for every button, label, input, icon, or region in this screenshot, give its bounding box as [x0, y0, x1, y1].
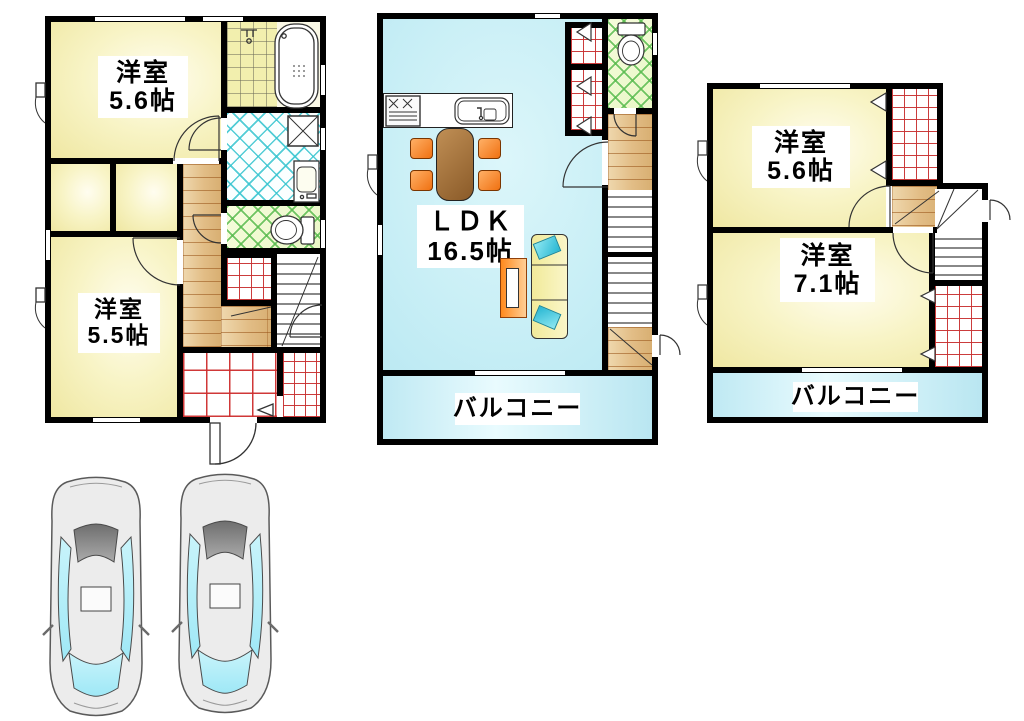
chair [478, 138, 501, 159]
wall [45, 231, 183, 237]
door-opening [173, 158, 219, 164]
bath-tile-floor [227, 22, 277, 107]
room-name: 洋室 [800, 242, 854, 270]
wall [929, 233, 935, 367]
casement-window [367, 155, 377, 195]
window [377, 225, 383, 255]
wall [937, 183, 988, 189]
chair [410, 138, 433, 159]
floor2-plan: ＬＤＫ 16.5帖 バルコニー [377, 13, 658, 445]
floor1-plan: 洋室 5.6帖 洋室 5.5帖 [45, 16, 326, 423]
kitchen-counter [383, 93, 513, 128]
wall [565, 22, 608, 28]
door-opening [602, 140, 608, 185]
door-opening [982, 200, 988, 222]
wall [45, 16, 326, 22]
window [45, 230, 51, 260]
balcony-text: バルコニー [453, 396, 583, 423]
room-name: 洋室 [94, 297, 144, 323]
room-label: 洋室 5.5帖 [78, 293, 160, 353]
wall [565, 130, 608, 136]
wall [602, 185, 608, 370]
closet-grid [892, 89, 937, 180]
floor3-plan: 洋室 5.6帖 洋室 7.1帖 バルコニー [707, 83, 988, 423]
window [95, 16, 185, 22]
door-opening [893, 227, 933, 233]
door-opening [177, 240, 183, 284]
balcony-label: バルコニー [793, 382, 918, 412]
entrance-door-opening [210, 417, 257, 423]
window [760, 83, 850, 89]
wall [221, 252, 227, 306]
window [320, 65, 326, 95]
hallway-wood-lower [221, 306, 271, 347]
door-opening [652, 335, 658, 357]
tv-screen [506, 268, 519, 308]
door-opening [221, 118, 227, 150]
hallway-wood [183, 164, 221, 353]
wall [45, 417, 326, 423]
wall [110, 164, 116, 231]
wall [571, 64, 602, 70]
window [320, 220, 326, 248]
window [93, 417, 140, 423]
casement-window [697, 141, 707, 325]
washroom [227, 113, 320, 200]
door-opening [614, 108, 636, 114]
room-label: 洋室 5.6帖 [98, 56, 188, 118]
closet-grid [571, 28, 602, 64]
wall [937, 83, 943, 189]
window [652, 33, 658, 55]
wall [565, 22, 571, 136]
wall [935, 280, 982, 286]
balcony-text: バルコニー [791, 384, 921, 411]
car-left [43, 478, 149, 716]
wall [602, 19, 608, 140]
wall [177, 164, 183, 231]
balcony-label: バルコニー [455, 393, 580, 425]
ldk-name: ＬＤＫ [428, 207, 512, 236]
wall [892, 180, 937, 186]
room-name: 洋室 [774, 129, 828, 157]
door-opening [221, 213, 227, 244]
floorplan-page: 洋室 5.6帖 洋室 5.5帖 [0, 0, 1024, 721]
window [535, 13, 560, 19]
staircase [608, 190, 652, 327]
parking-cars [40, 460, 280, 721]
toilet-room [227, 206, 320, 248]
door-opening [277, 396, 283, 417]
wall [652, 13, 658, 445]
closet-room-left [51, 164, 110, 231]
window [320, 128, 326, 150]
window [203, 16, 243, 22]
wall [227, 107, 320, 113]
hallway-wood [608, 114, 652, 190]
toilet-room [608, 19, 652, 108]
wall [707, 417, 988, 423]
wall [221, 252, 277, 258]
staircase [277, 254, 320, 347]
room-size: 7.1帖 [794, 270, 862, 298]
balcony-window [475, 370, 565, 376]
entrance-door [210, 423, 256, 464]
wall [377, 439, 658, 445]
wall [377, 13, 658, 19]
staircase [935, 189, 982, 280]
closet-grid [935, 286, 982, 367]
room-name: 洋室 [116, 59, 170, 87]
room-label: 洋室 7.1帖 [780, 238, 875, 302]
room-size: 5.6帖 [109, 87, 177, 115]
casement-window [35, 83, 45, 328]
wall [183, 347, 320, 353]
car-right [172, 475, 278, 713]
chair [478, 170, 501, 191]
balcony-window [802, 367, 902, 373]
room-label: 洋室 5.6帖 [752, 126, 850, 188]
wall [221, 300, 277, 306]
closet-room-mid [116, 164, 177, 231]
chair [410, 170, 433, 191]
entrance-tile [183, 353, 277, 417]
closet-grid [227, 258, 271, 300]
door-opening [886, 186, 892, 227]
stair-landing-wall [608, 252, 652, 257]
closet-grid [571, 70, 602, 130]
wall [271, 254, 277, 353]
entrance-storage [283, 353, 320, 417]
stair-landing-wood [608, 327, 652, 370]
wall [227, 200, 320, 206]
dining-table [436, 128, 474, 201]
wall [45, 16, 51, 423]
room-size: 5.5帖 [88, 323, 151, 349]
room-size: 5.6帖 [767, 157, 835, 185]
